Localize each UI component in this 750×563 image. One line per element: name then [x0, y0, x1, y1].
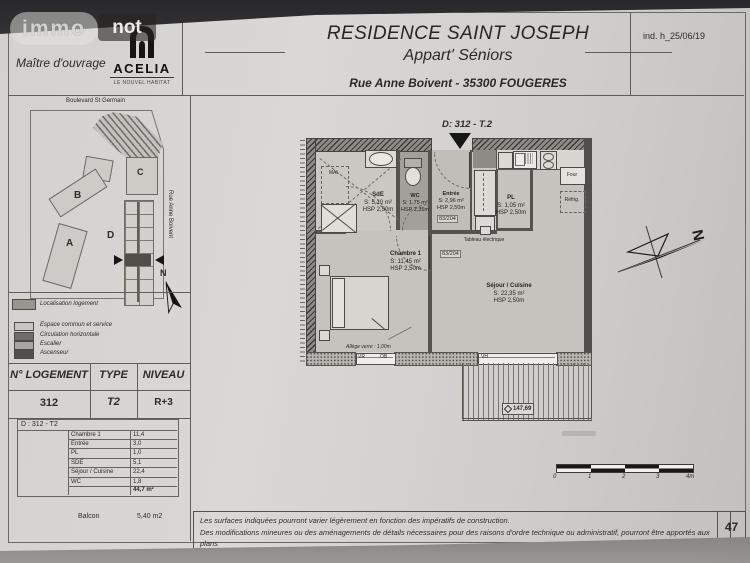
stove-burner: [543, 161, 554, 169]
areas-table-line: [68, 439, 177, 440]
legend-swatch-escalier: [14, 341, 34, 350]
footer-disclaimer: Les surfaces indiquées pourront varier l…: [193, 511, 731, 549]
legend-swatch-circulation: [14, 332, 34, 341]
area-row-value: 22,4: [133, 469, 145, 475]
areas-table-line: [68, 448, 177, 449]
entrance-marker-icon: [449, 133, 471, 149]
areas-table-line: [68, 477, 177, 478]
north-compass-icon: N: [612, 216, 712, 294]
watermark-immo-pill: immo: [10, 12, 98, 45]
unit-number: 312: [9, 397, 89, 409]
legend-label-ascenseur: Ascenseur: [40, 350, 68, 356]
room-label-chambre: Chambre 1 S: 11,45 m² HSP 2,50m: [378, 251, 433, 274]
room-label-sejour: Séjour / Cuisine S: 22,35 m² HSP 2,50m: [479, 283, 539, 306]
unit-level: R+3: [137, 397, 190, 408]
room-name: Chambre 1: [390, 251, 421, 257]
window-glazing-line: [479, 357, 555, 358]
closet-upper-unit: [473, 150, 496, 168]
sink-drainer: [525, 153, 533, 164]
level-mark-icon: [504, 405, 512, 413]
window-tag-vh: VH: [481, 354, 488, 360]
scale-segment: [625, 465, 659, 472]
area-row-name: Chambre 1: [71, 432, 101, 438]
areas-table-line: [68, 458, 177, 459]
area-row-name: SDE: [71, 460, 83, 466]
paper-sheet: Maître d'ouvrage ACELIA LE NOUVEL HABITA…: [0, 0, 750, 563]
deco-line-right: [585, 52, 672, 53]
legend-label-circulation: Circulation horizontale: [40, 332, 99, 338]
balcony-level-tag: 147,69: [502, 403, 534, 415]
building-b-label: B: [74, 190, 81, 201]
bed-pillow: [332, 278, 345, 328]
site-boundary-top: [30, 110, 152, 111]
balcony-label: Balcon: [78, 513, 99, 520]
room-hsp: HSP 2,50m: [496, 210, 527, 216]
areas-table-line: [68, 486, 177, 487]
acelia-logo-rule: [110, 77, 174, 78]
room-area: S: 11,45 m²: [390, 259, 421, 265]
window-tag-vr: VR: [358, 354, 365, 360]
room-label-pl: PL S: 1,05 m² HSP 2,50m: [486, 195, 536, 218]
unit-pointer-right-icon: [155, 255, 164, 265]
building-a-label: A: [66, 238, 73, 249]
scale-segment: [659, 465, 693, 472]
site-boundary-left: [30, 110, 31, 298]
kitchen-unit: [498, 152, 513, 169]
page-number: 47: [717, 511, 746, 543]
unit-table-line: [8, 390, 190, 391]
compass-north-label: N: [688, 228, 707, 242]
unit-pointer-left-icon: [114, 255, 123, 265]
water-heater-line: [483, 173, 485, 211]
acelia-logo-tagline: LE NOUVEL HABITAT: [104, 80, 180, 86]
project-title: RESIDENCE SAINT JOSEPH: [258, 23, 658, 45]
allege-note: Allège verre : 1,00m: [346, 344, 391, 350]
legend-label-localisation: Localisation logement: [40, 301, 98, 307]
panel-divider: [190, 95, 191, 541]
toilet-bowl: [405, 167, 421, 186]
scale-bar: [556, 464, 694, 473]
area-row-name: PL: [71, 450, 78, 456]
area-row-value: 1,8: [133, 479, 141, 485]
scale-segment: [557, 465, 591, 472]
electrical-panel-symbol: [480, 226, 491, 235]
watermark-not-text: not: [112, 17, 142, 39]
sink-bowl: [515, 153, 525, 166]
scale-tick: 1: [588, 474, 591, 480]
nightstand: [319, 330, 330, 341]
room-area: S: 5,10 m²: [364, 200, 392, 206]
building-c-label: C: [137, 167, 144, 177]
street-label-right: Rue Anne Boivent: [167, 190, 173, 238]
washing-machine-label: MAL: [321, 170, 347, 176]
balcony-level-value: 147,69: [513, 406, 531, 412]
door-tag: 83/204: [437, 215, 458, 223]
illegible-note: [562, 431, 596, 436]
room-hsp: HSP 2,50m: [363, 207, 394, 213]
wall-pl-bottom: [497, 228, 533, 231]
area-row-name: WC: [71, 479, 81, 485]
stove-burner: [543, 153, 554, 161]
room-hsp: HSP 2,50m: [437, 205, 465, 211]
room-name: SdE: [372, 192, 384, 198]
room-area: S: 1,05 m²: [497, 203, 525, 209]
project-address: Rue Anne Boivent - 35300 FOUGERES: [258, 76, 658, 90]
watermark-not-box: not: [98, 14, 156, 41]
area-total: 44,7 m²: [133, 487, 154, 493]
room-area: S: 2,96 m²: [438, 198, 463, 204]
area-row-value: 3,0: [133, 441, 141, 447]
electrical-panel-label: Tableau électrique: [460, 237, 508, 243]
acelia-logo-name: ACELIA: [104, 61, 180, 76]
area-row-name: Séjour / Cuisine: [71, 469, 113, 475]
owner-label: Maître d'ouvrage: [16, 56, 106, 70]
scale-tick: 2: [622, 474, 625, 480]
footer-line-2: Des modifications mineures ou des aménag…: [200, 527, 724, 550]
room-name: Entrée: [442, 191, 459, 197]
areas-table-line: [17, 430, 177, 431]
watermark-immo-text: immo: [22, 17, 86, 41]
washbasin: [369, 152, 393, 166]
areas-table-line: [68, 467, 177, 468]
building-d-units-grid: [124, 200, 154, 306]
revision-index: ind. h_25/06/19: [643, 31, 705, 41]
window-tag-ob: OB: [380, 354, 387, 360]
scale-tick: 0: [553, 474, 556, 480]
area-row-name: Entrée: [71, 441, 89, 447]
scale-tick: 4m: [686, 474, 694, 480]
area-row-value: 1,0: [133, 450, 141, 456]
wall-bottom-seg: [306, 352, 356, 366]
legend-top-line: [8, 292, 190, 293]
legend-swatch-espace-commun: [14, 322, 34, 331]
room-hsp: HSP 2,50m: [390, 266, 421, 272]
building-d-label: D: [107, 230, 114, 241]
room-name: PL: [507, 195, 515, 201]
footer-line-1: Les surfaces indiquées pourront varier l…: [200, 515, 724, 527]
unit-table-header-logement: N° LOGEMENT: [9, 369, 89, 381]
area-row-value: 5,1: [133, 460, 141, 466]
street-label-top: Boulevard St Germain: [66, 98, 125, 104]
scale-tick: 3: [656, 474, 659, 480]
area-row-value: 11,4: [133, 432, 144, 438]
unit-table-line: [8, 363, 190, 364]
oven-label: Four: [560, 172, 584, 178]
site-north-label: N: [160, 268, 167, 278]
header-divider-left: [182, 12, 183, 95]
room-name: Séjour / Cuisine: [486, 283, 531, 289]
nightstand: [319, 265, 330, 276]
room-hsp: HSP 2,35m: [401, 207, 429, 213]
balcony-area: 5,40 m2: [137, 513, 162, 520]
header-bottom-line: [8, 95, 744, 96]
project-subtitle: Appart' Séniors: [258, 47, 658, 65]
legend-label-espace-commun: Espace commun et service: [40, 322, 112, 328]
legend-label-escalier: Escalier: [40, 341, 61, 347]
room-name: WC: [410, 193, 419, 199]
fridge-label: Réfrig.: [560, 197, 584, 203]
deco-line-left: [205, 52, 285, 53]
photo-stage: Maître d'ouvrage ACELIA LE NOUVEL HABITA…: [0, 0, 750, 563]
areas-table-title: D : 312 - T2: [21, 421, 58, 428]
room-label-entree: Entrée S: 2,96 m² HSP 2,50m: [426, 191, 476, 212]
legend-swatch-localisation: [12, 299, 36, 310]
wall-left: [306, 138, 316, 364]
unit-type: T2: [90, 396, 137, 408]
room-hsp: HSP 2,50m: [494, 298, 525, 304]
room-area: S: 22,35 m²: [493, 291, 524, 297]
room-area: S: 1,75 m²: [402, 200, 427, 206]
legend-swatch-ascenseur: [14, 350, 34, 359]
plan-unit-label: D: 312 - T.2: [402, 119, 532, 130]
unit-table-header-type: TYPE: [90, 369, 137, 381]
entrance-door-leaf: [469, 152, 470, 188]
unit-table-header-niveau: NIVEAU: [137, 369, 190, 381]
highlighted-unit: [125, 254, 151, 266]
survey-ticks: [300, 140, 305, 362]
scale-segment: [591, 465, 625, 472]
door-tag: 83/204: [440, 250, 461, 258]
building-d-corridor: [137, 202, 139, 302]
